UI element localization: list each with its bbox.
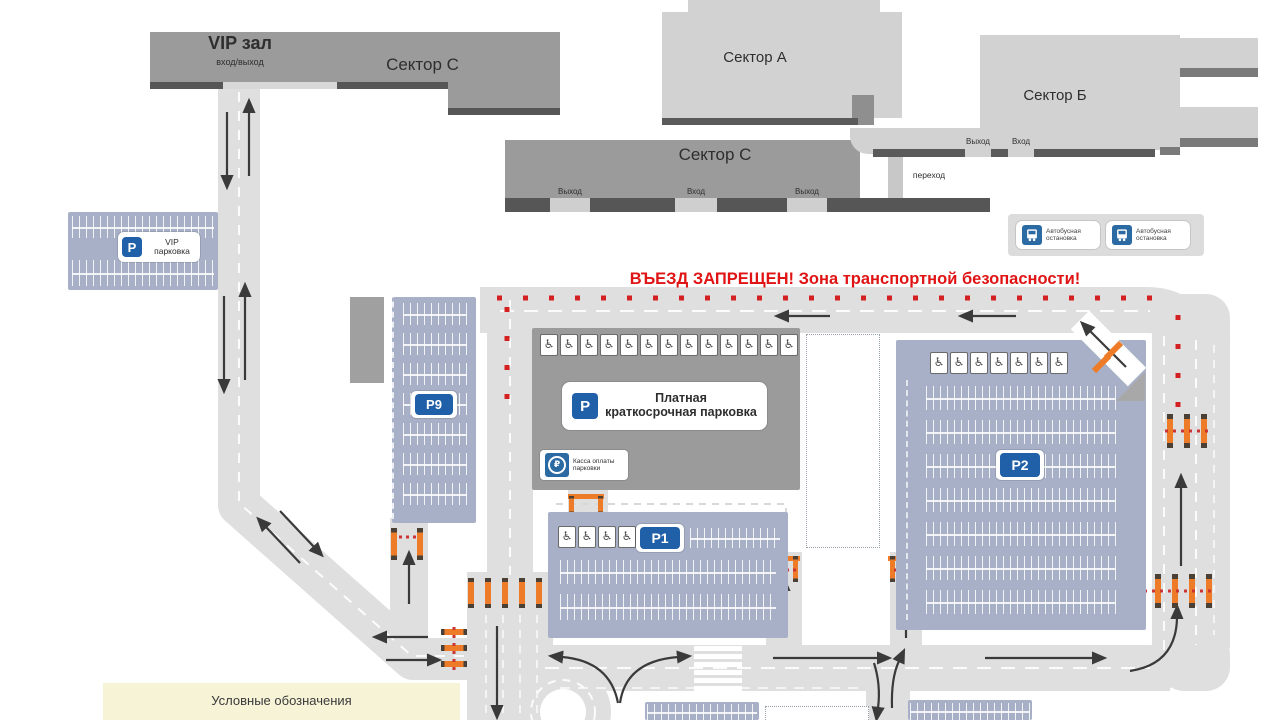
pay-station-label: Касса оплаты парковки [573,458,623,472]
parking-p1-badge: P1 [636,524,684,552]
service-building [350,297,384,383]
accessible-parking-row: ♿♿♿♿♿♿♿♿♿♿♿♿♿ [540,334,800,356]
security-banner: ВЪЕЗД ЗАПРЕЩЕН! Зона транспортной безопа… [510,270,1200,288]
sector-c-lower-label: Сектор C [635,146,795,165]
wheelchair-icon: ♿ [930,352,948,374]
door-label-c-entrance: Вход [674,188,718,197]
wheelchair-icon: ♿ [580,334,598,356]
reserved-area-partial [765,706,869,720]
parking-paid: ♿♿♿♿♿♿♿♿♿♿♿♿♿ P Платная краткосрочная па… [532,328,800,490]
wheelchair-icon: ♿ [558,526,576,548]
sector-b-label: Сектор Б [985,88,1125,105]
wheelchair-icon: ♿ [618,526,636,548]
wheelchair-icon: ♿ [600,334,618,356]
accessible-parking-row: ♿♿♿♿ [558,526,638,548]
pay-station-icon: ₽ [545,453,569,477]
terminal-sector-a-top [688,0,880,14]
legend-title: Условные обозначения [103,694,460,708]
wheelchair-icon: ♿ [700,334,718,356]
wheelchair-icon: ♿ [680,334,698,356]
sector-a-label: Сектор А [685,50,825,67]
bus-icon [1022,225,1042,245]
wheelchair-icon: ♿ [780,334,798,356]
sector-b-pier-1 [1180,38,1258,69]
sector-b-pier-2 [1180,107,1258,139]
vip-hall-label: VIP зал [170,34,310,54]
wheelchair-icon: ♿ [540,334,558,356]
wheelchair-icon: ♿ [1010,352,1028,374]
parking-vip-label: VIP парковка [148,238,196,257]
parking-icon: P2 [1000,453,1040,477]
door-label-c-exit-2: Выход [785,188,829,197]
wheelchair-icon: ♿ [720,334,738,356]
bus-icon [1112,225,1132,245]
door-label-b-entrance: Вход [999,138,1043,147]
bus-stop-label: Автобусная остановка [1046,228,1094,243]
door-label-b-exit: Выход [956,138,1000,147]
wheelchair-icon: ♿ [660,334,678,356]
parking-p2-badge: P2 [996,450,1044,480]
vip-hall-sublabel: вход/выход [170,58,310,68]
parking-p1: ♿♿♿♿ P1 [548,512,788,638]
wheelchair-icon: ♿ [760,334,778,356]
wheelchair-icon: ♿ [640,334,658,356]
parking-paid-line2: краткосрочная парковка [605,406,757,420]
ruble-icon: ₽ [548,456,566,474]
parking-row-partial [645,702,759,720]
accessible-parking-row: ♿♿♿♿♿♿♿ [930,352,1070,374]
parking-icon: P9 [415,394,453,415]
airport-parking-map: VIP зал вход/выход Сектор C Сектор C Вых… [0,0,1280,720]
bus-stop-badge: Автобусная остановка [1016,221,1100,249]
parking-icon: P [122,237,142,257]
wheelchair-icon: ♿ [970,352,988,374]
reserved-area [806,334,880,548]
bus-stop-badge: Автобусная остановка [1106,221,1190,249]
parking-icon: P1 [640,527,680,549]
parking-row-partial [908,700,1032,720]
pay-station-badge: ₽ Касса оплаты парковки [540,450,628,480]
passage-label: переход [900,171,958,180]
door-label-c-exit-1: Выход [548,188,592,197]
parking-p9: P9 [392,297,476,523]
parking-p9-badge: P9 [411,391,457,418]
wheelchair-icon: ♿ [1030,352,1048,374]
wheelchair-icon: ♿ [950,352,968,374]
wheelchair-icon: ♿ [598,526,616,548]
wheelchair-icon: ♿ [620,334,638,356]
parking-paid-line1: Платная [605,392,757,406]
parking-icon: P [572,393,598,419]
wheelchair-icon: ♿ [578,526,596,548]
bus-stop-label: Автобусная остановка [1136,228,1184,243]
wheelchair-icon: ♿ [740,334,758,356]
parking-paid-badge: P Платная краткосрочная парковка [562,382,767,430]
wheelchair-icon: ♿ [560,334,578,356]
p2-exit-overlay [1050,295,1170,415]
parking-vip-badge: P VIP парковка [118,232,200,262]
sector-c-upper-label: Сектор C [345,56,500,75]
wheelchair-icon: ♿ [990,352,1008,374]
